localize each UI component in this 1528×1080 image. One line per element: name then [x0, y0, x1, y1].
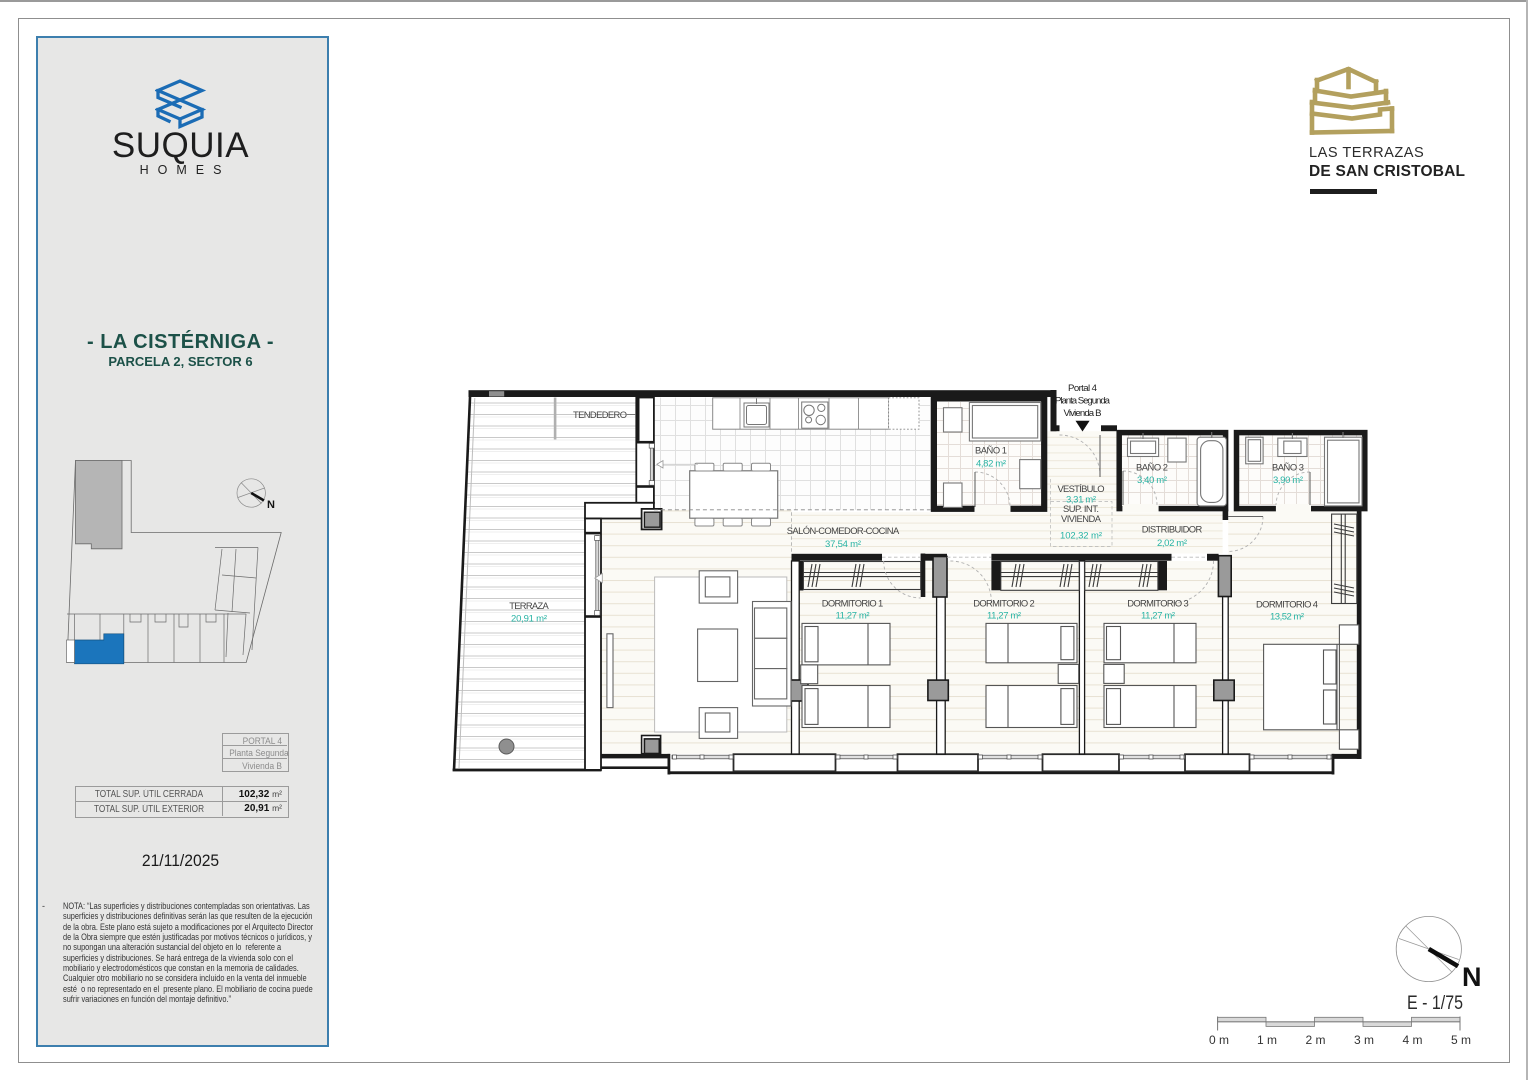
svg-text:Portal 4: Portal 4	[1068, 383, 1098, 394]
svg-text:BAÑO 2: BAÑO 2	[1136, 462, 1168, 473]
svg-text:DISTRIBUIDOR: DISTRIBUIDOR	[1142, 524, 1203, 535]
svg-text:4,82 m²: 4,82 m²	[976, 459, 1006, 470]
svg-text:N: N	[267, 499, 275, 511]
svg-text:N: N	[1462, 962, 1482, 992]
svg-text:13,52 m²: 13,52 m²	[1270, 612, 1304, 623]
svg-text:2,02 m²: 2,02 m²	[1157, 538, 1187, 549]
svg-text:4 m: 4 m	[1402, 1033, 1422, 1047]
svg-text:11,27 m²: 11,27 m²	[1141, 611, 1175, 622]
svg-text:3 m: 3 m	[1354, 1033, 1374, 1047]
svg-text:DORMITORIO 1: DORMITORIO 1	[822, 598, 884, 609]
svg-text:2 m: 2 m	[1305, 1033, 1325, 1047]
svg-text:3,31 m²: 3,31 m²	[1066, 495, 1096, 506]
svg-text:DORMITORIO 4: DORMITORIO 4	[1256, 599, 1318, 610]
svg-text:BAÑO 1: BAÑO 1	[975, 445, 1007, 456]
svg-text:VESTÍBULO: VESTÍBULO	[1058, 483, 1105, 494]
svg-text:0 m: 0 m	[1209, 1033, 1229, 1047]
svg-text:20,91 m²: 20,91 m²	[511, 614, 547, 625]
svg-text:Vivienda B: Vivienda B	[1064, 408, 1102, 419]
svg-text:3,40 m²: 3,40 m²	[1137, 475, 1167, 486]
svg-text:11,27 m²: 11,27 m²	[987, 611, 1021, 622]
svg-text:1 m: 1 m	[1257, 1033, 1277, 1047]
svg-text:5 m: 5 m	[1451, 1033, 1471, 1047]
svg-text:102,32 m²: 102,32 m²	[1060, 531, 1102, 542]
svg-text:DORMITORIO 3: DORMITORIO 3	[1127, 598, 1189, 609]
svg-text:Planta Segunda: Planta Segunda	[1055, 396, 1111, 407]
svg-text:11,27 m²: 11,27 m²	[836, 611, 870, 622]
svg-text:BAÑO 3: BAÑO 3	[1272, 462, 1304, 473]
svg-text:TENDEDERO: TENDEDERO	[573, 409, 627, 420]
svg-text:VIVIENDA: VIVIENDA	[1061, 513, 1102, 524]
svg-text:DORMITORIO 2: DORMITORIO 2	[973, 598, 1035, 609]
svg-text:3,90 m²: 3,90 m²	[1273, 475, 1303, 486]
svg-text:TERRAZA: TERRAZA	[509, 600, 549, 611]
svg-text:SALÓN-COMEDOR-COCINA: SALÓN-COMEDOR-COCINA	[787, 525, 900, 536]
svg-text:37,54 m²: 37,54 m²	[825, 539, 861, 550]
